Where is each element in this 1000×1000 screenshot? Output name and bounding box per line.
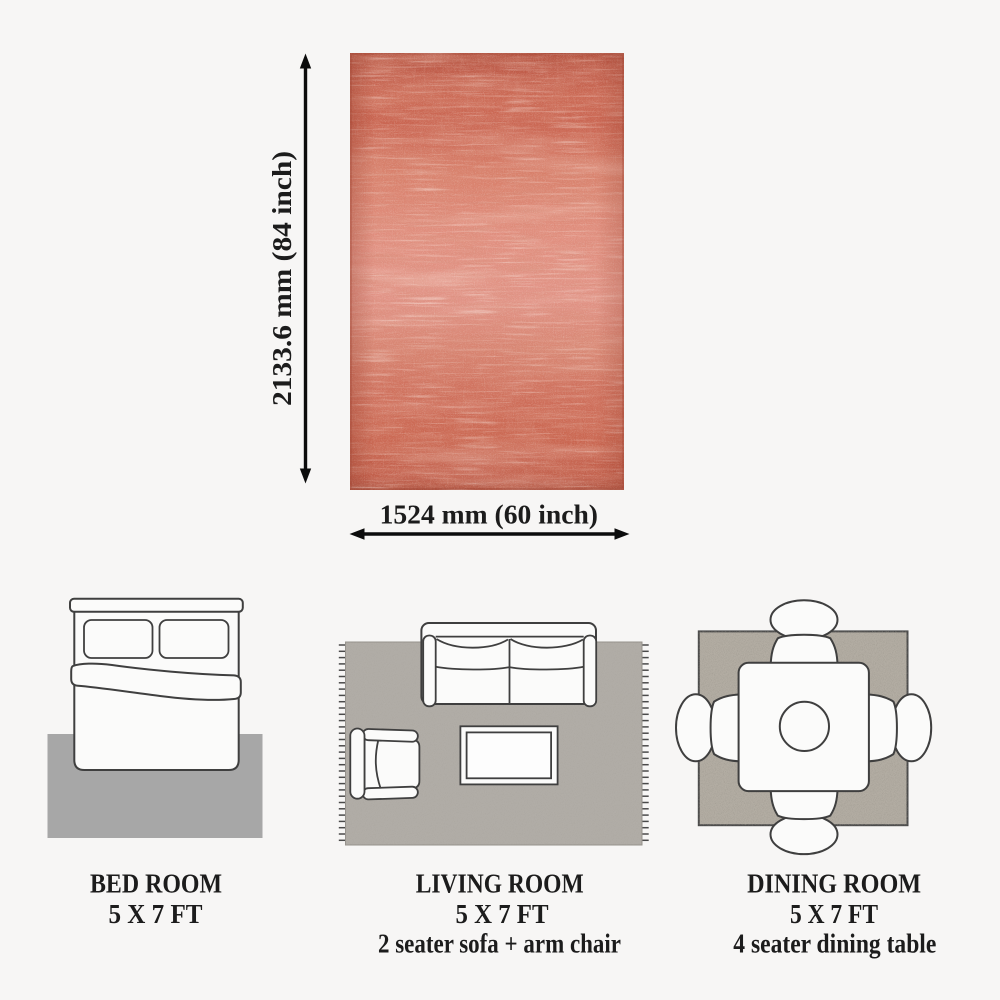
svg-text:BED ROOM: BED ROOM <box>90 868 222 899</box>
svg-text:2133.6 mm (84 inch): 2133.6 mm (84 inch) <box>266 151 297 406</box>
svg-text:DINING ROOM: DINING ROOM <box>747 868 921 899</box>
svg-text:LIVING ROOM: LIVING ROOM <box>416 868 584 899</box>
svg-text:2 seater sofa + arm chair: 2 seater sofa + arm chair <box>378 928 621 959</box>
svg-text:5 X 7 FT: 5 X 7 FT <box>109 898 203 929</box>
svg-text:5 X 7 FT: 5 X 7 FT <box>790 898 878 929</box>
svg-text:5 X 7 FT: 5 X 7 FT <box>456 898 549 929</box>
svg-text:4 seater dining table: 4 seater dining table <box>733 928 936 959</box>
svg-text:1524 mm (60 inch): 1524 mm (60 inch) <box>380 498 598 529</box>
